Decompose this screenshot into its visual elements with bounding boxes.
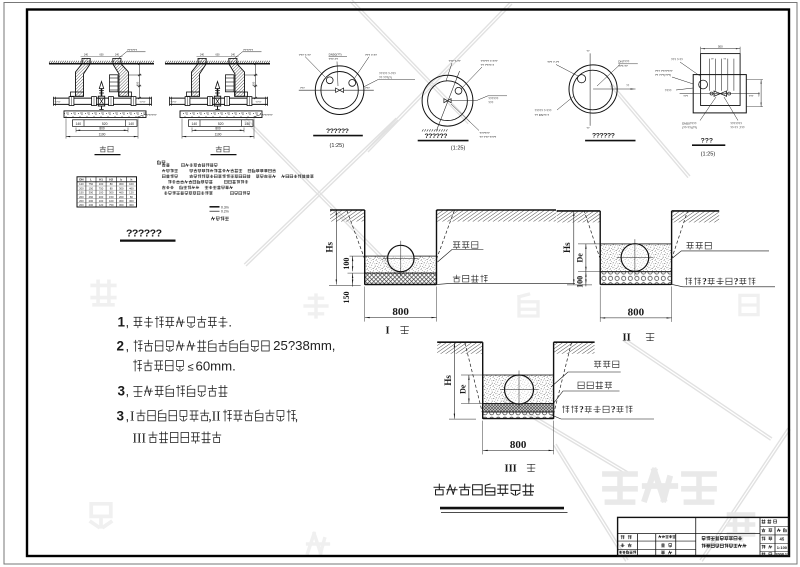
svg-text:300: 300 (119, 199, 124, 203)
svg-text:750: 750 (109, 203, 114, 207)
svg-text:200: 200 (119, 195, 124, 199)
svg-text:100: 100 (99, 191, 104, 195)
svg-text:120: 120 (79, 182, 84, 186)
svg-text:Hs: Hs (443, 375, 453, 386)
svg-text:?? ??? ????: ?? ??? ???? (480, 135, 497, 139)
svg-text:??????: ?????? (592, 133, 615, 140)
svg-text:450: 450 (136, 81, 140, 86)
svg-text:?: ? (702, 277, 707, 287)
svg-text:100: 100 (99, 199, 104, 203)
svg-text:800: 800 (392, 306, 409, 318)
svg-text:I: I (386, 326, 390, 337)
svg-text:,: , (126, 315, 130, 330)
svg-text:140: 140 (191, 122, 197, 126)
svg-text:????: ???? (256, 100, 262, 104)
svg-text:300: 300 (129, 203, 134, 207)
svg-text:2008.12: 2008.12 (775, 553, 789, 557)
svg-text:???-??: ???-?? (329, 57, 339, 61)
svg-text:??? ?-??: ??? ?-?? (365, 53, 377, 57)
svg-text:????? ?-???: ????? ?-??? (481, 59, 498, 63)
svg-text:140: 140 (128, 122, 134, 126)
svg-text:450: 450 (252, 81, 256, 86)
svg-text:???: ??? (365, 86, 370, 90)
svg-text:3: 3 (118, 384, 126, 399)
svg-text:300: 300 (129, 199, 134, 203)
svg-text:???????: ??????? (146, 113, 157, 117)
svg-text:240: 240 (115, 54, 120, 57)
svg-text:200: 200 (79, 203, 84, 207)
svg-text:????: ???? (55, 100, 61, 104)
svg-text:?? DN??-?: ?? DN??-? (535, 113, 550, 117)
svg-text:200: 200 (89, 199, 94, 203)
svg-text:???: ??? (488, 101, 493, 105)
svg-text:800: 800 (215, 126, 221, 130)
svg-text:?: ? (611, 405, 616, 415)
svg-text:240: 240 (231, 54, 236, 57)
svg-text:460: 460 (129, 186, 134, 190)
svg-text:200: 200 (79, 195, 84, 199)
svg-text:≤: ≤ (188, 361, 194, 373)
svg-text:??????: ?????? (127, 48, 137, 52)
svg-text:De: De (575, 253, 584, 263)
svg-text:(1:25): (1:25) (701, 151, 716, 157)
svg-text:???: ??? (701, 137, 713, 144)
svg-text:III: III (133, 430, 147, 445)
svg-text:???: ??? (757, 92, 761, 97)
svg-text:h: h (130, 178, 132, 182)
svg-text:240: 240 (200, 54, 205, 57)
svg-text:III: III (505, 463, 517, 474)
svg-text:150: 150 (342, 292, 351, 304)
svg-text:I: I (130, 409, 135, 424)
svg-text:200: 200 (99, 195, 104, 199)
svg-text:520: 520 (218, 122, 224, 126)
svg-text:140: 140 (75, 122, 81, 126)
svg-text:460: 460 (119, 191, 124, 195)
svg-text:??? ?-??: ??? ?-?? (449, 59, 461, 63)
svg-text:DN: DN (79, 178, 83, 182)
svg-text:Hs: Hs (325, 242, 335, 253)
svg-text:750: 750 (89, 182, 94, 186)
svg-text:0.2m: 0.2m (221, 210, 229, 214)
svg-text:45: 45 (780, 537, 785, 542)
svg-text:80: 80 (130, 195, 133, 199)
svg-text:150: 150 (109, 195, 114, 199)
svg-text:II: II (623, 333, 631, 344)
svg-text:,II: ,II (208, 409, 220, 424)
svg-text:(1:25): (1:25) (451, 145, 466, 151)
svg-text:200: 200 (79, 199, 84, 203)
svg-text:????: ???? (140, 100, 146, 104)
svg-text:??????: ?????? (243, 48, 253, 52)
svg-text:300: 300 (119, 186, 124, 190)
svg-text:???: ??? (749, 94, 754, 98)
svg-text:H1: H1 (99, 178, 103, 182)
svg-text:120: 120 (129, 191, 134, 195)
svg-text:60mm.: 60mm. (196, 358, 236, 373)
svg-text:?? ????-?: ?? ????-? (481, 63, 495, 67)
svg-text:300: 300 (119, 203, 124, 207)
svg-text:(??-??)(??): (??-??)(??) (682, 126, 697, 130)
svg-text:800: 800 (510, 439, 527, 451)
svg-text:,: , (126, 409, 130, 424)
svg-text:??? ?-??: ??? ?-?? (671, 58, 683, 62)
svg-text:???: ??? (683, 94, 688, 98)
svg-text:??-?? ,???: ??-?? ,??? (730, 126, 745, 130)
svg-text:750: 750 (99, 186, 104, 190)
svg-text:100: 100 (342, 258, 351, 270)
svg-text:????: ???? (171, 100, 177, 104)
svg-text:?: ? (734, 277, 739, 287)
svg-text:L: L (90, 178, 92, 182)
svg-text:150: 150 (89, 186, 94, 190)
svg-text:80: 80 (110, 182, 113, 186)
svg-text:100: 100 (99, 182, 104, 186)
svg-text:100: 100 (575, 276, 584, 288)
svg-text:300: 300 (89, 191, 94, 195)
svg-text:DN50(??): DN50(??) (329, 52, 342, 56)
svg-text:???: ??? (300, 86, 305, 90)
svg-text:?: ? (579, 405, 584, 415)
svg-text:600: 600 (216, 54, 221, 57)
svg-text:???????: ??????? (262, 113, 273, 117)
svg-text:H2: H2 (109, 178, 113, 182)
svg-text:??????: ?????? (425, 133, 448, 140)
svg-text:b: b (120, 178, 122, 182)
svg-text:1: 1 (118, 315, 126, 330)
svg-text:150: 150 (79, 191, 84, 195)
svg-text:3: 3 (117, 409, 125, 424)
svg-text:300: 300 (109, 191, 114, 195)
svg-text:?? ???(?): ?? ???(?) (379, 76, 392, 80)
svg-text:Hs: Hs (562, 242, 572, 253)
svg-text:25?38mm,: 25?38mm, (273, 338, 335, 353)
svg-text:1100: 1100 (99, 133, 106, 137)
svg-text:460: 460 (89, 195, 94, 199)
svg-text:1:100: 1:100 (777, 545, 788, 550)
svg-text:??? ?-??: ??? ?-?? (299, 53, 311, 57)
svg-text:0.3m: 0.3m (221, 205, 229, 209)
svg-text:520: 520 (102, 122, 108, 126)
svg-text:De: De (458, 384, 467, 394)
svg-text:??????: ?????? (326, 128, 349, 135)
svg-text:(1:25): (1:25) (330, 143, 345, 149)
svg-text:600: 600 (100, 54, 105, 57)
svg-text:120: 120 (99, 203, 104, 207)
svg-text:1100: 1100 (215, 133, 222, 137)
svg-text:100: 100 (129, 182, 134, 186)
svg-text:800: 800 (99, 126, 105, 130)
svg-text:80: 80 (110, 186, 113, 190)
svg-text:,: , (126, 384, 130, 399)
svg-text:????: ???? (665, 88, 672, 92)
svg-text:2: 2 (117, 339, 125, 354)
svg-text:?? ???(???): ?? ???(???) (655, 73, 671, 77)
svg-text:DN????: DN???? (618, 60, 629, 64)
svg-text:240: 240 (84, 54, 89, 57)
svg-text:200: 200 (89, 203, 94, 207)
svg-text:??? ?-??: ??? ?-?? (547, 60, 559, 64)
svg-text:300: 300 (119, 182, 124, 186)
svg-text:500: 500 (718, 45, 723, 49)
svg-text:,: , (126, 339, 130, 354)
svg-text:800: 800 (628, 306, 645, 318)
svg-text:200: 200 (79, 186, 84, 190)
svg-text:140: 140 (244, 122, 250, 126)
svg-text:.: . (228, 315, 232, 330)
svg-text:,: , (295, 409, 299, 424)
svg-text:100: 100 (109, 199, 114, 203)
svg-text:??????: ?????? (126, 228, 162, 240)
